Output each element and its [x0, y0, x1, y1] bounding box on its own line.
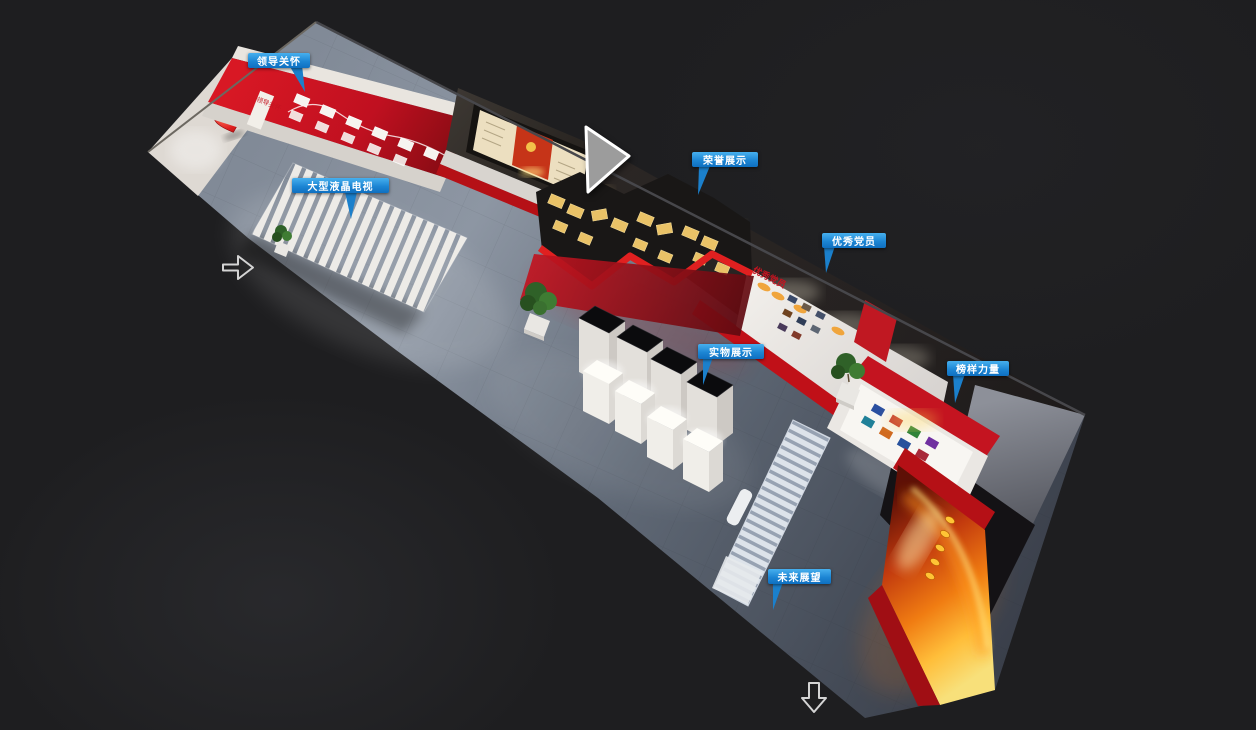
- exhibition-3d-view: 领导关怀 优秀党员: [0, 0, 1256, 730]
- exhibition-render: 领导关怀 优秀党员: [0, 0, 1256, 730]
- hotspot-role-model-power[interactable]: 榜样力量: [947, 361, 1009, 376]
- hotspot-leadership-care[interactable]: 领导关怀: [248, 53, 310, 68]
- arrow-right-outline-icon: [222, 254, 256, 283]
- triangle-cursor-icon: [580, 120, 638, 206]
- hotspot-honor-display[interactable]: 荣誉展示: [692, 152, 758, 167]
- hotspot-outstanding-party-members[interactable]: 优秀党员: [822, 233, 886, 248]
- hotspot-large-lcd-tv[interactable]: 大型液晶电视: [292, 178, 389, 193]
- nav-arrow-down[interactable]: [801, 682, 828, 718]
- arrow-down-outline-icon: [801, 682, 828, 714]
- nav-arrow-right[interactable]: [222, 254, 256, 287]
- hotspot-future-outlook[interactable]: 未来展望: [768, 569, 831, 584]
- hotspot-physical-exhibits[interactable]: 实物展示: [698, 344, 764, 359]
